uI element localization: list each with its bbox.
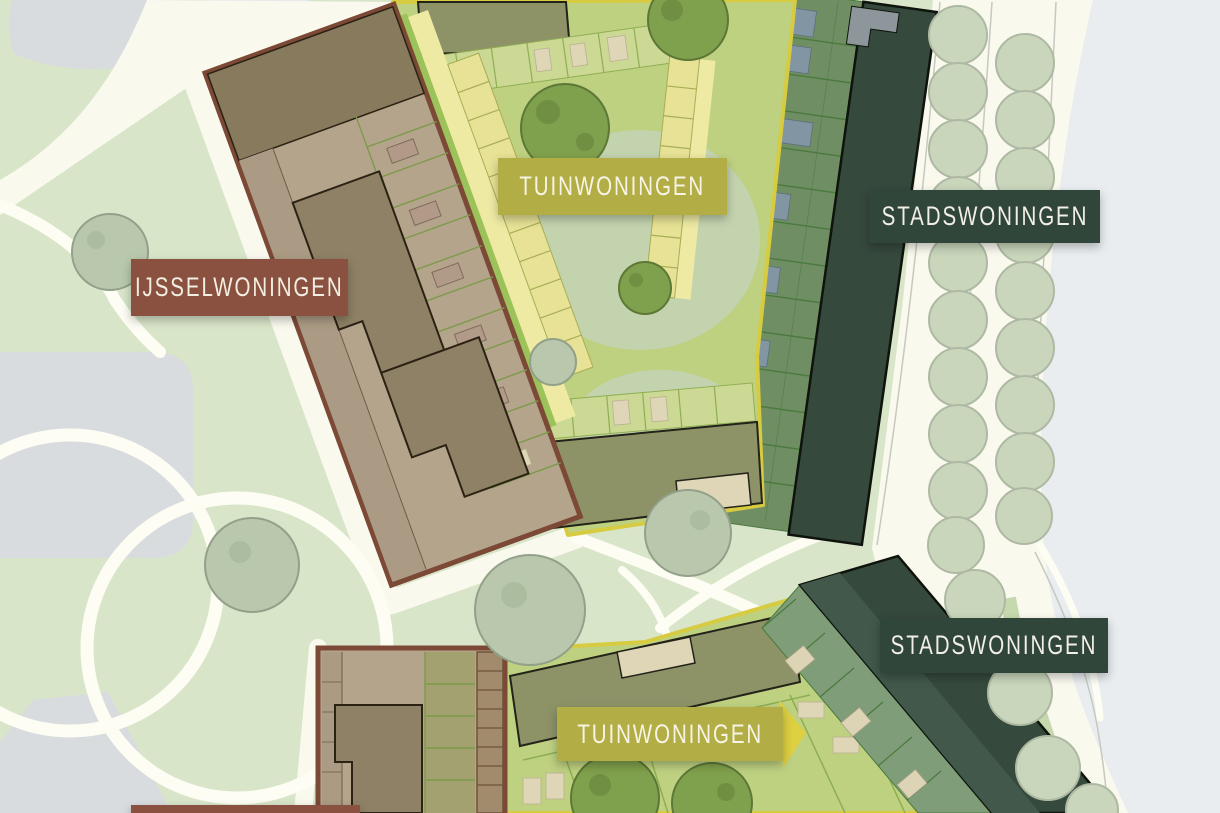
area-label-text: TUINWONINGEN bbox=[577, 719, 763, 750]
area-label-ijsselwoningen-2[interactable]: IJSSELWONINGEN bbox=[131, 805, 360, 813]
area-label-text: STADSWONINGEN bbox=[891, 630, 1098, 661]
area-label-tuinwoningen-1[interactable]: TUINWONINGEN bbox=[498, 158, 727, 215]
area-label-stadswoningen-2[interactable]: STADSWONINGEN bbox=[880, 618, 1108, 673]
site-plan-drawing bbox=[0, 0, 1220, 813]
site-plan-map: IJSSELWONINGEN TUINWONINGEN STADSWONINGE… bbox=[0, 0, 1220, 813]
ijsselwoningen-block-2 bbox=[318, 648, 505, 813]
area-label-ijsselwoningen-1[interactable]: IJSSELWONINGEN bbox=[131, 259, 348, 316]
area-label-text: STADSWONINGEN bbox=[881, 201, 1088, 232]
area-label-text: IJSSELWONINGEN bbox=[135, 272, 344, 303]
area-label-text: TUINWONINGEN bbox=[520, 171, 706, 202]
area-label-tuinwoningen-2[interactable]: TUINWONINGEN bbox=[557, 707, 783, 761]
area-label-stadswoningen-1[interactable]: STADSWONINGEN bbox=[869, 190, 1100, 243]
